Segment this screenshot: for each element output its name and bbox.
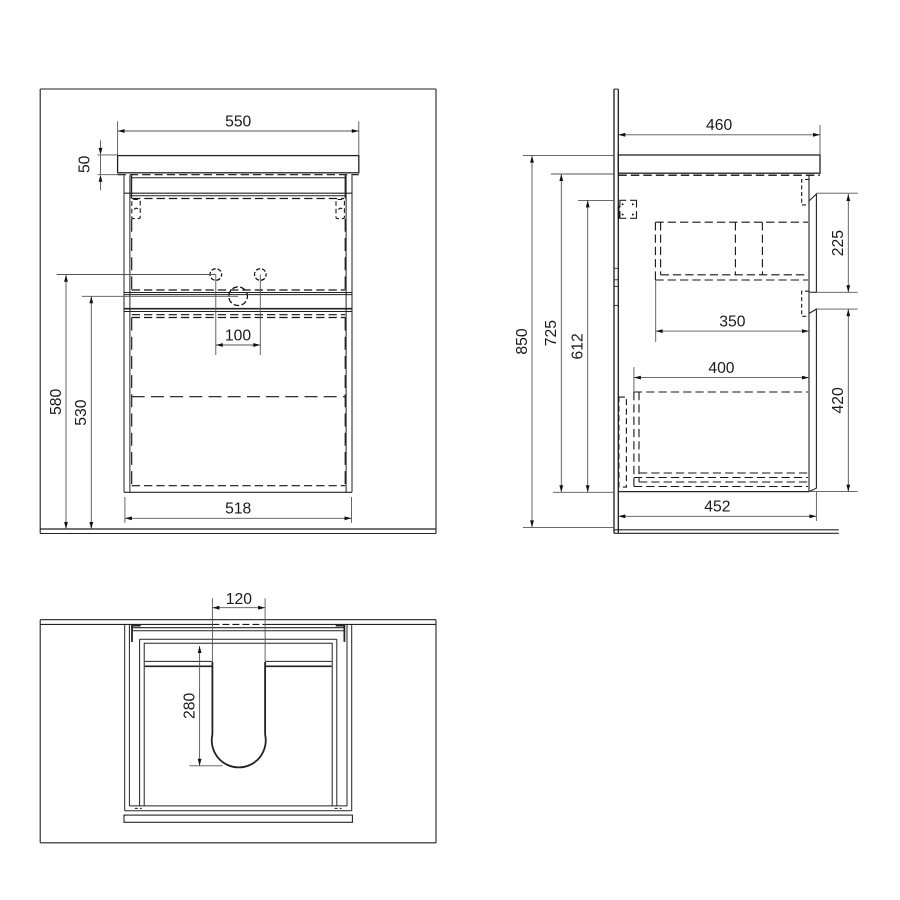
- svg-text:350: 350: [719, 313, 745, 330]
- svg-text:612: 612: [570, 333, 587, 359]
- svg-text:50: 50: [77, 155, 94, 173]
- svg-text:725: 725: [543, 320, 560, 346]
- svg-text:420: 420: [830, 387, 847, 413]
- svg-text:120: 120: [226, 591, 252, 608]
- svg-text:460: 460: [706, 117, 732, 134]
- svg-text:225: 225: [830, 230, 847, 256]
- svg-text:850: 850: [514, 328, 531, 354]
- svg-text:518: 518: [225, 501, 251, 518]
- svg-text:400: 400: [708, 360, 734, 377]
- svg-text:580: 580: [48, 388, 65, 414]
- svg-text:452: 452: [704, 499, 730, 516]
- svg-text:100: 100: [225, 327, 251, 344]
- svg-text:280: 280: [181, 693, 198, 719]
- svg-text:530: 530: [73, 399, 90, 425]
- svg-text:550: 550: [225, 113, 251, 130]
